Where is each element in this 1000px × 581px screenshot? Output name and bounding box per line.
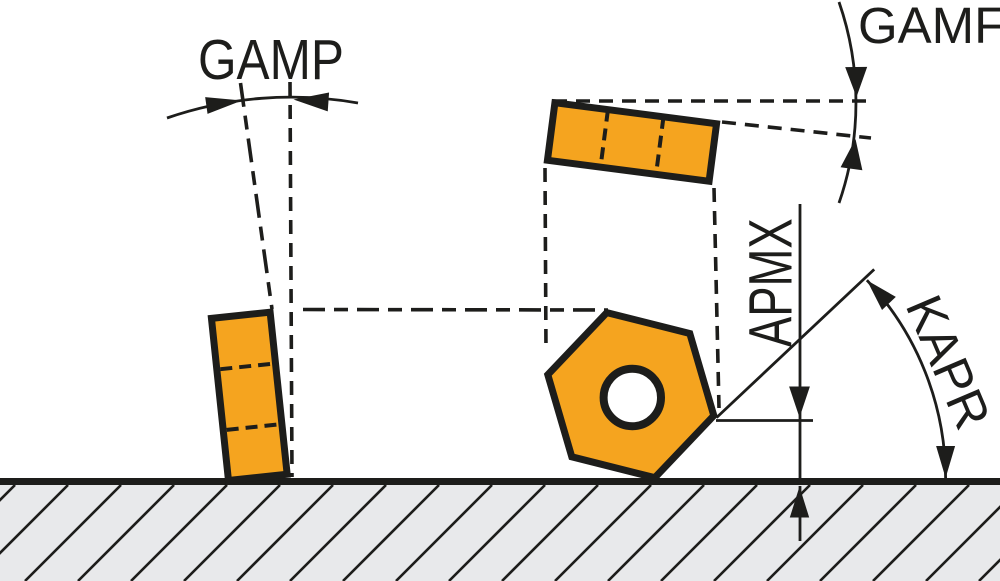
svg-text:GAMF: GAMF	[858, 0, 1000, 54]
svg-text:APMX: APMX	[737, 218, 805, 347]
svg-text:GAMP: GAMP	[198, 29, 344, 92]
